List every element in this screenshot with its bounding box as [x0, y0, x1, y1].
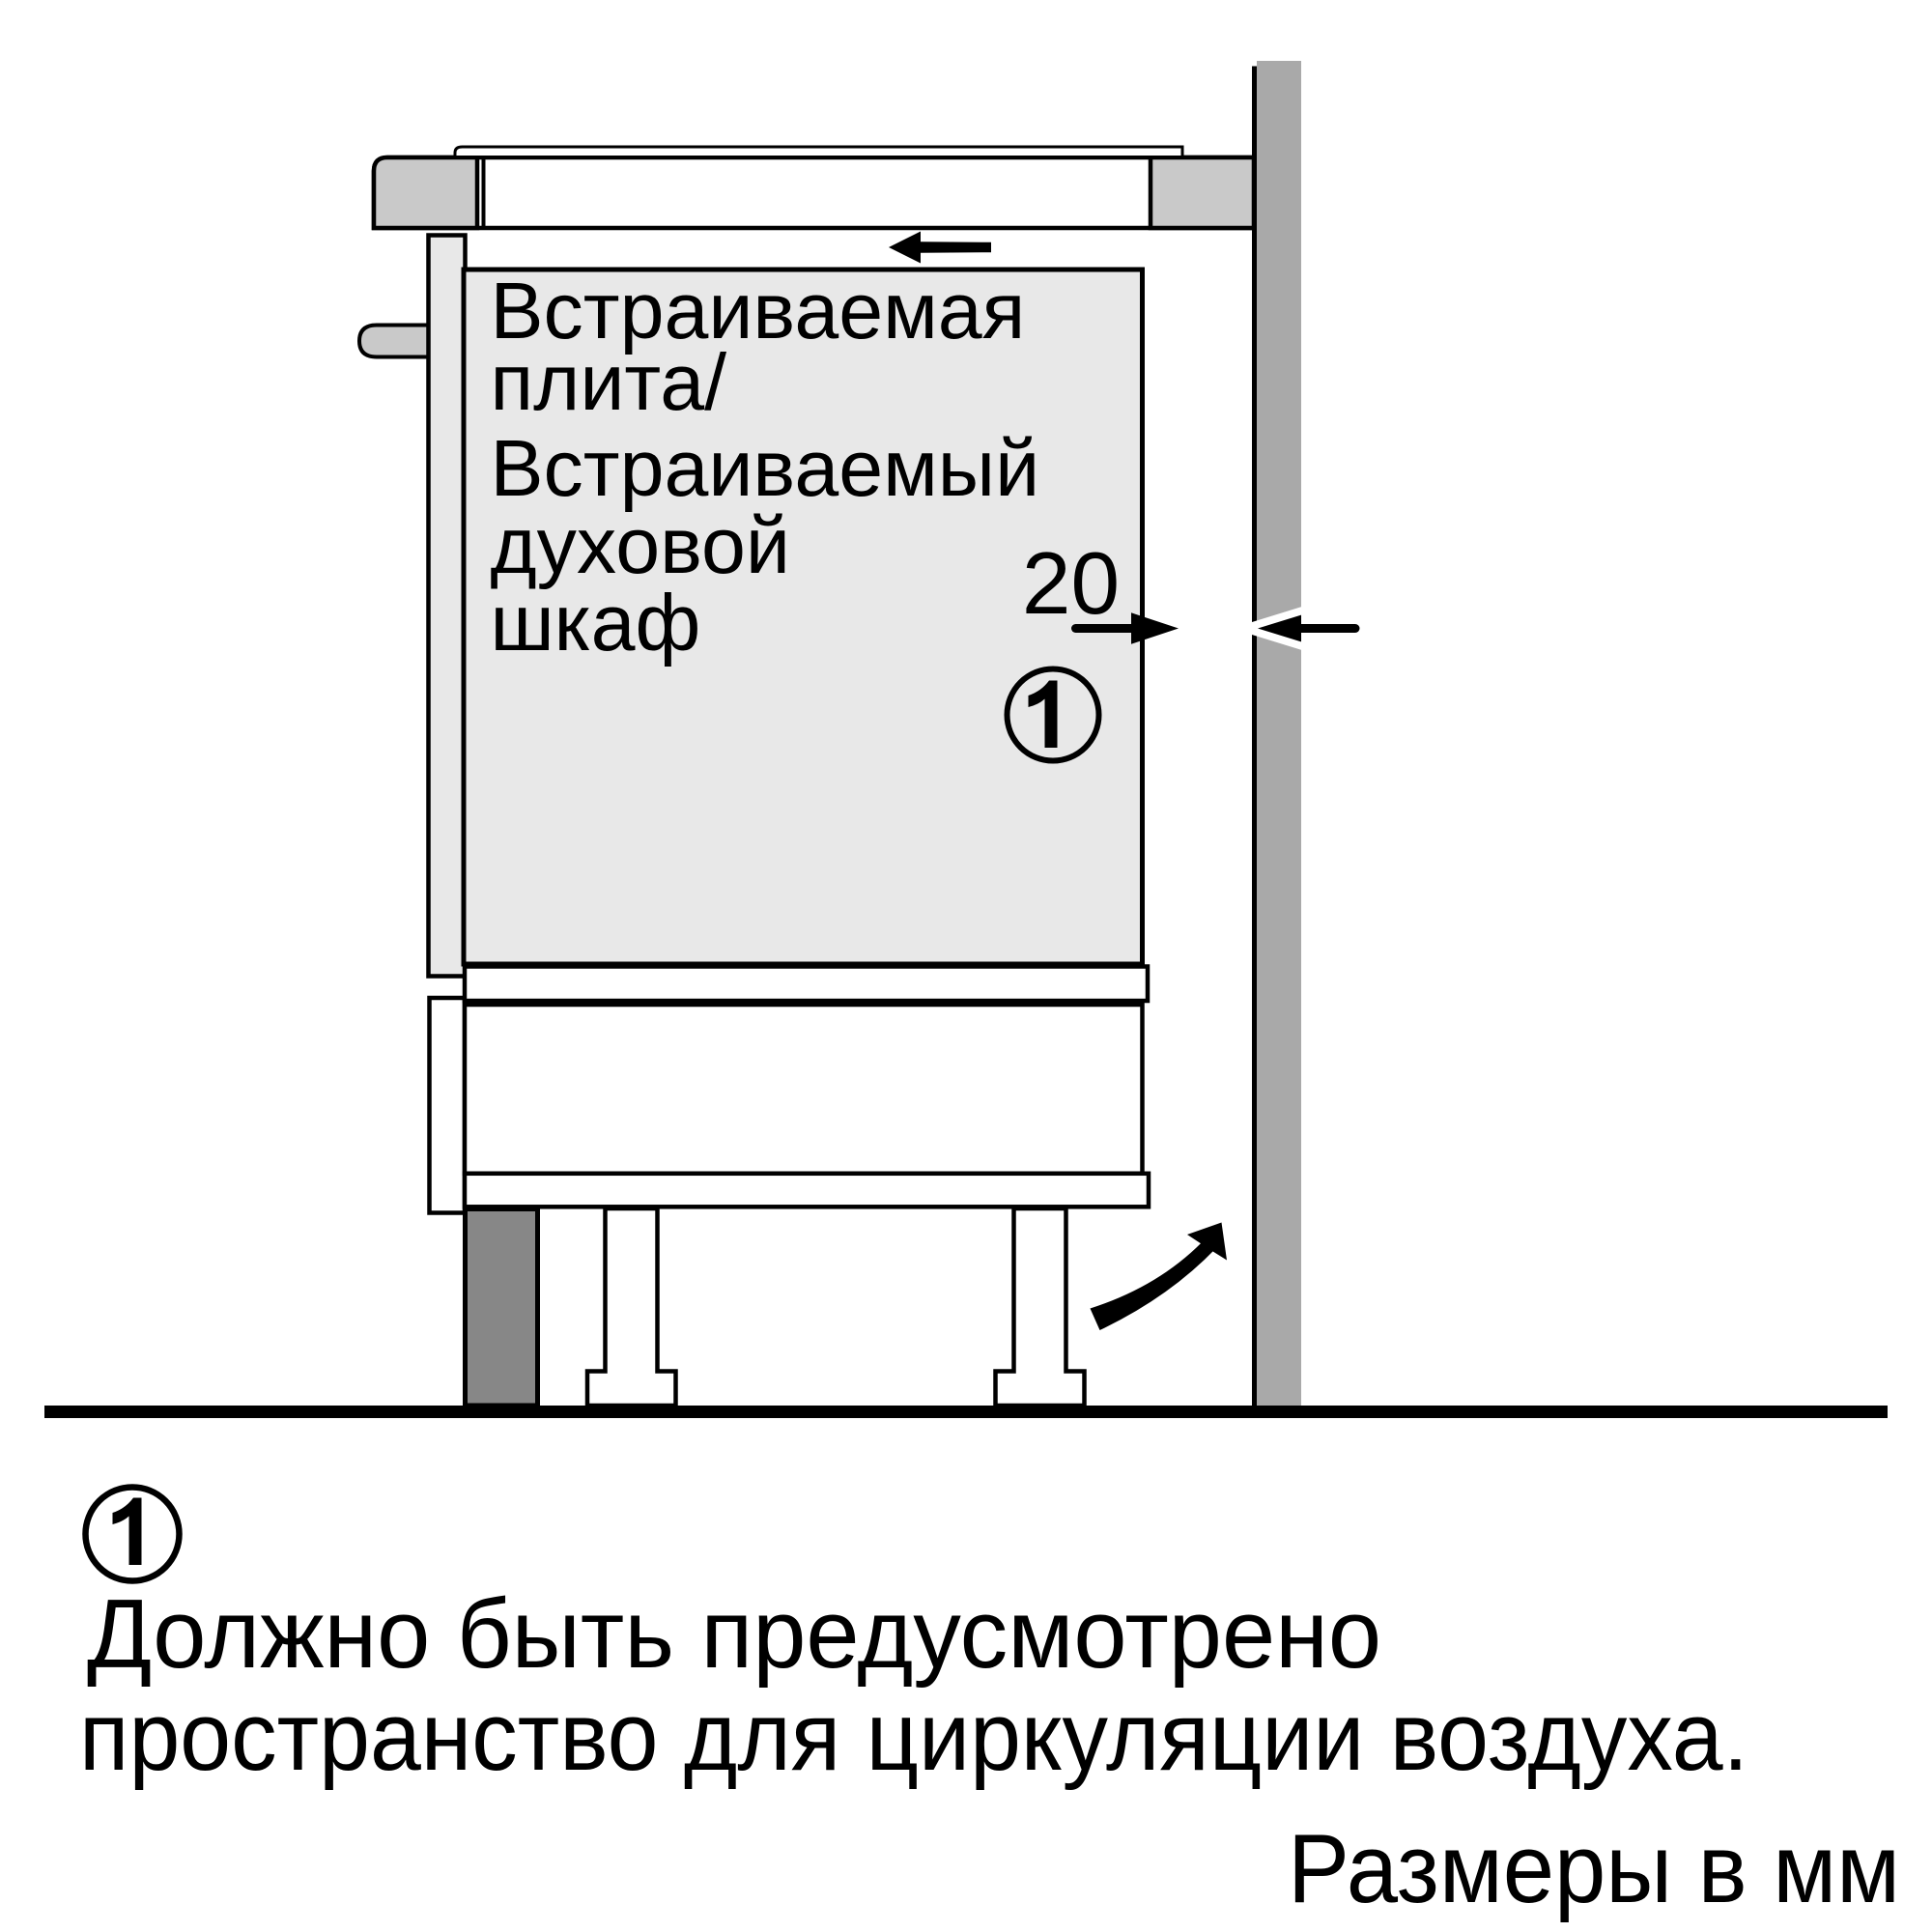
svg-text:пространство для циркуляции во: пространство для циркуляции воздуха. — [79, 1683, 1748, 1791]
svg-text:Размеры в мм: Размеры в мм — [1288, 1815, 1900, 1923]
svg-text:Должно быть предусмотрено: Должно быть предусмотрено — [87, 1580, 1381, 1689]
svg-text:шкаф: шкаф — [491, 579, 701, 668]
svg-text:духовой: духовой — [491, 501, 790, 590]
svg-text:Встраиваемый: Встраиваемый — [491, 424, 1040, 513]
svg-text:20: 20 — [1022, 535, 1120, 633]
svg-text:плита/: плита/ — [491, 338, 727, 427]
